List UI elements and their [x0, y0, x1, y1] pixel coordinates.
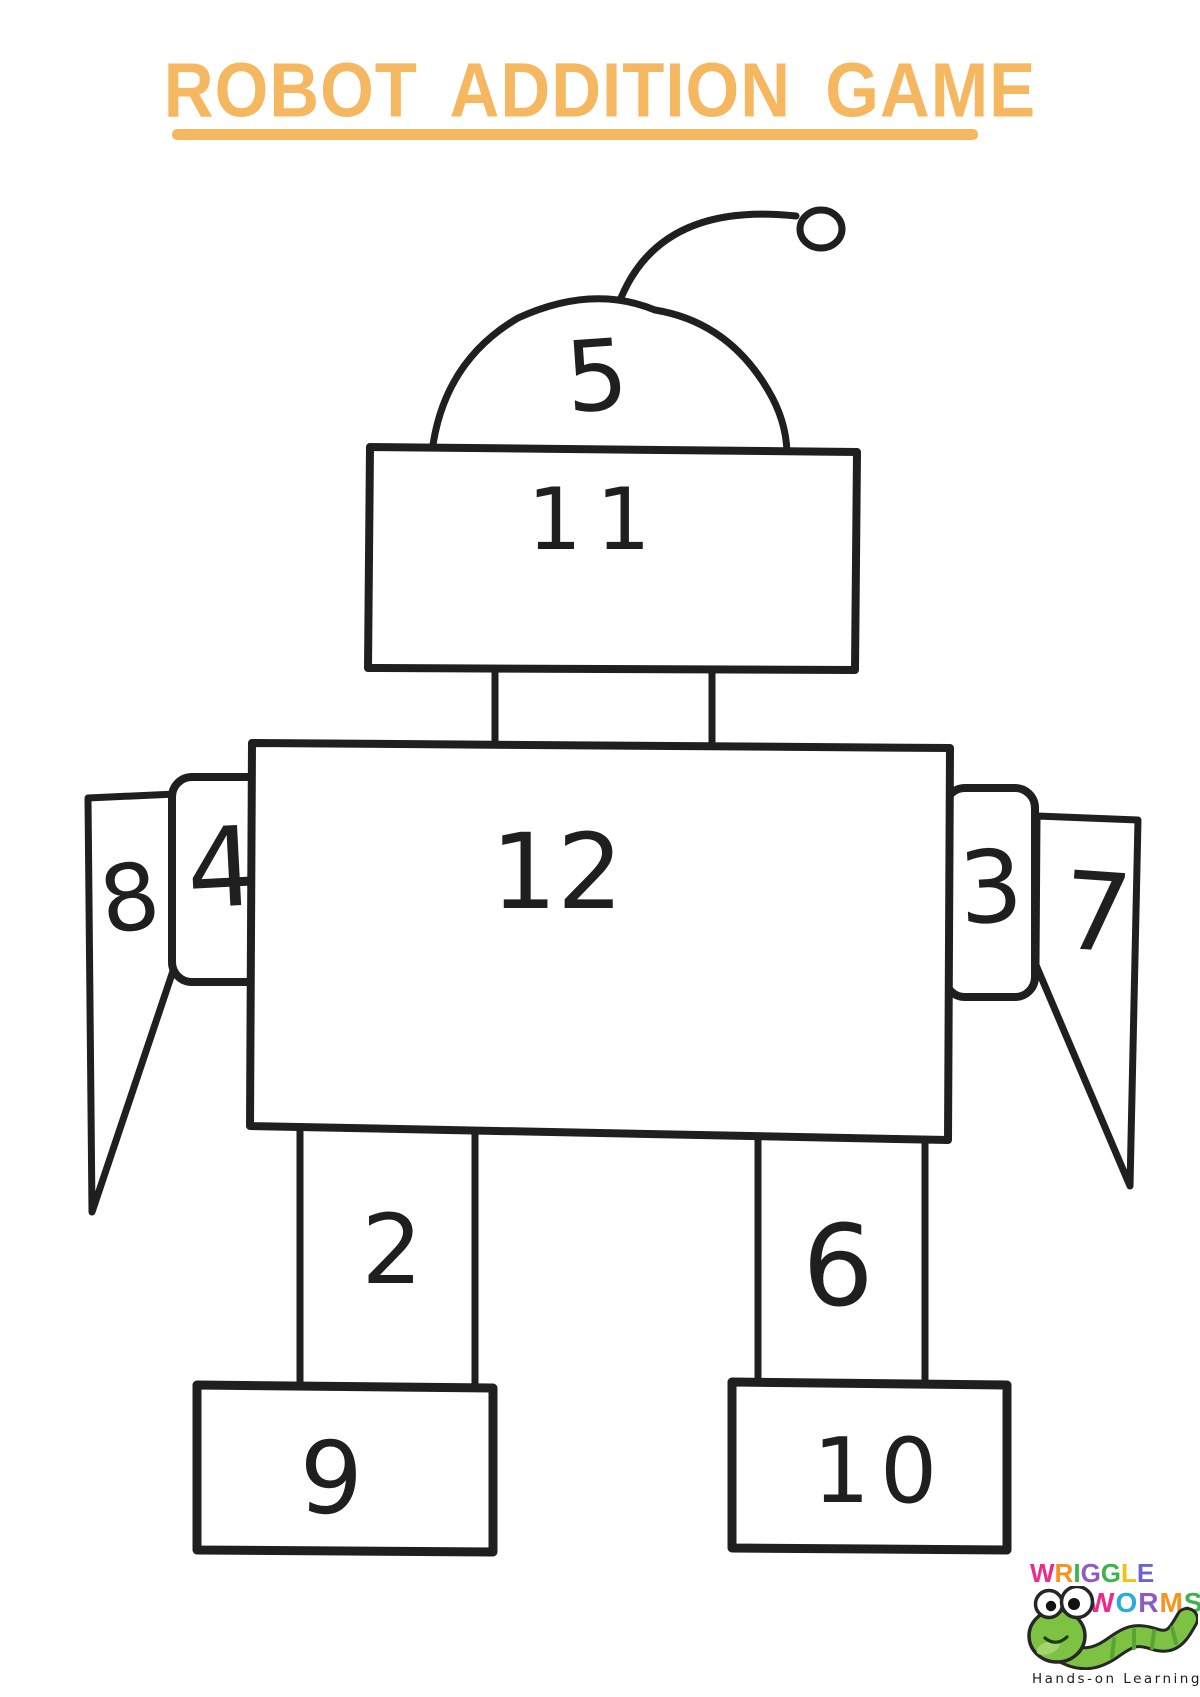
logo-letter: W [1030, 1558, 1055, 1588]
worm-left-pupil [1046, 1601, 1056, 1611]
worm-illustration [1026, 1586, 1198, 1670]
logo-letter: L [1121, 1558, 1137, 1588]
antenna-tip [800, 210, 842, 248]
worm-stripe [1152, 1631, 1154, 1648]
logo-tagline: Hands-on Learning [1032, 1671, 1200, 1687]
right-leg-number: 6 [802, 1202, 873, 1332]
head-number: 11 [527, 470, 664, 570]
logo-letter: G [1101, 1558, 1121, 1588]
right-shoulder-number: 3 [956, 827, 1026, 947]
logo-word-wriggle: WRIGGLE [1030, 1558, 1154, 1589]
logo-letter: E [1137, 1558, 1154, 1588]
robot-body-shape [250, 743, 950, 1140]
worksheet-page: ROBOT ADDITION GAME [0, 0, 1200, 1697]
logo-letter: R [1055, 1558, 1074, 1588]
logo-letter: G [1081, 1558, 1101, 1588]
body-number: 12 [491, 811, 623, 933]
worm-right-pupil [1068, 1598, 1080, 1610]
logo-letter: I [1073, 1558, 1080, 1588]
left-leg-number: 2 [361, 1194, 422, 1306]
right-arm-number: 7 [1058, 849, 1135, 978]
robot-drawing: 5 11 12 4 8 3 7 2 6 9 10 [0, 0, 1200, 1697]
right-foot-number: 10 [813, 1419, 948, 1524]
left-shoulder-number: 4 [184, 802, 261, 933]
head-dome-number: 5 [562, 318, 632, 436]
wriggle-worms-logo: WRIGGLE WORMS [1024, 1558, 1200, 1697]
worm-stripe [1112, 1639, 1114, 1657]
left-foot-number: 9 [297, 1419, 365, 1538]
